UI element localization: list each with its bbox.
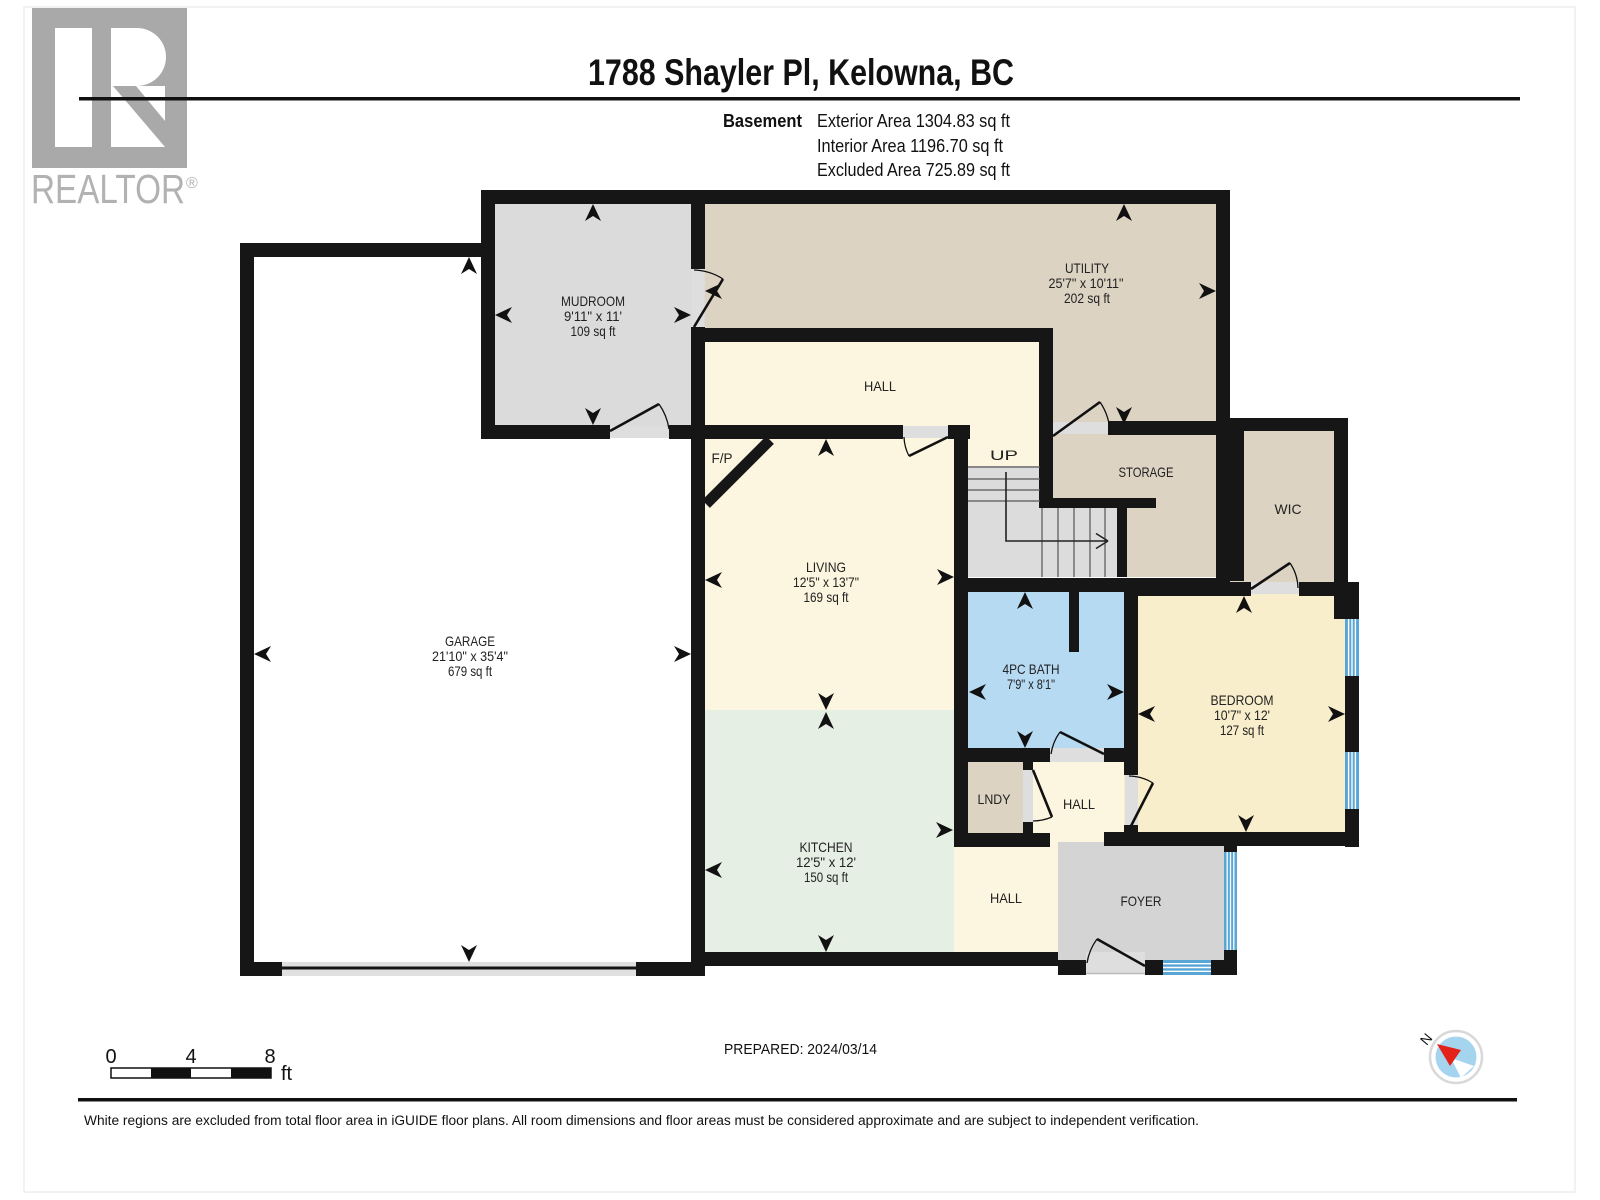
svg-text:FOYER: FOYER — [1121, 893, 1162, 909]
svg-text:Basement: Basement — [723, 111, 802, 131]
svg-text:4: 4 — [185, 1046, 196, 1068]
svg-text:7'9" x 8'1": 7'9" x 8'1" — [1007, 676, 1055, 692]
svg-text:9'11" x 11': 9'11" x 11' — [564, 308, 622, 324]
svg-text:ft: ft — [281, 1063, 293, 1085]
svg-text:109 sq ft: 109 sq ft — [571, 323, 616, 339]
svg-text:REALTOR: REALTOR — [31, 166, 185, 212]
svg-text:169 sq ft: 169 sq ft — [804, 589, 849, 605]
svg-text:WIC: WIC — [1275, 501, 1302, 517]
svg-text:KITCHEN: KITCHEN — [800, 839, 853, 855]
svg-text:679 sq ft: 679 sq ft — [448, 663, 492, 679]
svg-text:21'10" x 35'4": 21'10" x 35'4" — [432, 648, 508, 664]
svg-text:127 sq ft: 127 sq ft — [1220, 722, 1264, 738]
svg-text:25'7" x 10'11": 25'7" x 10'11" — [1049, 275, 1124, 291]
svg-text:UP: UP — [990, 447, 1018, 463]
svg-text:White regions are excluded fro: White regions are excluded from total fl… — [84, 1113, 1199, 1129]
svg-text:150 sq ft: 150 sq ft — [804, 869, 848, 885]
svg-text:HALL: HALL — [864, 378, 896, 394]
svg-text:MUDROOM: MUDROOM — [561, 293, 625, 309]
svg-text:Interior Area 1196.70 sq ft: Interior Area 1196.70 sq ft — [817, 136, 1003, 156]
svg-text:GARAGE: GARAGE — [445, 633, 495, 649]
svg-text:HALL: HALL — [1063, 796, 1095, 812]
svg-text:LIVING: LIVING — [806, 559, 846, 575]
svg-text:12'5" x 13'7": 12'5" x 13'7" — [793, 574, 859, 590]
svg-text:®: ® — [186, 175, 198, 192]
svg-text:Exterior Area 1304.83 sq ft: Exterior Area 1304.83 sq ft — [817, 111, 1010, 131]
svg-text:Excluded Area 725.89 sq ft: Excluded Area 725.89 sq ft — [817, 160, 1010, 180]
svg-text:0: 0 — [105, 1046, 116, 1068]
svg-text:F/P: F/P — [712, 451, 733, 466]
svg-text:8: 8 — [264, 1046, 275, 1068]
svg-text:STORAGE: STORAGE — [1119, 464, 1174, 480]
svg-text:BEDROOM: BEDROOM — [1211, 692, 1274, 708]
svg-text:1788 Shayler Pl, Kelowna, BC: 1788 Shayler Pl, Kelowna, BC — [588, 52, 1014, 93]
svg-text:10'7" x 12': 10'7" x 12' — [1214, 707, 1270, 723]
svg-text:12'5" x 12': 12'5" x 12' — [796, 854, 856, 870]
svg-text:4PC BATH: 4PC BATH — [1003, 661, 1060, 677]
svg-text:HALL: HALL — [990, 890, 1022, 906]
svg-text:UTILITY: UTILITY — [1065, 260, 1110, 276]
svg-text:PREPARED: 2024/03/14: PREPARED: 2024/03/14 — [724, 1041, 877, 1058]
svg-text:LNDY: LNDY — [978, 791, 1012, 807]
svg-text:202 sq ft: 202 sq ft — [1064, 290, 1110, 306]
